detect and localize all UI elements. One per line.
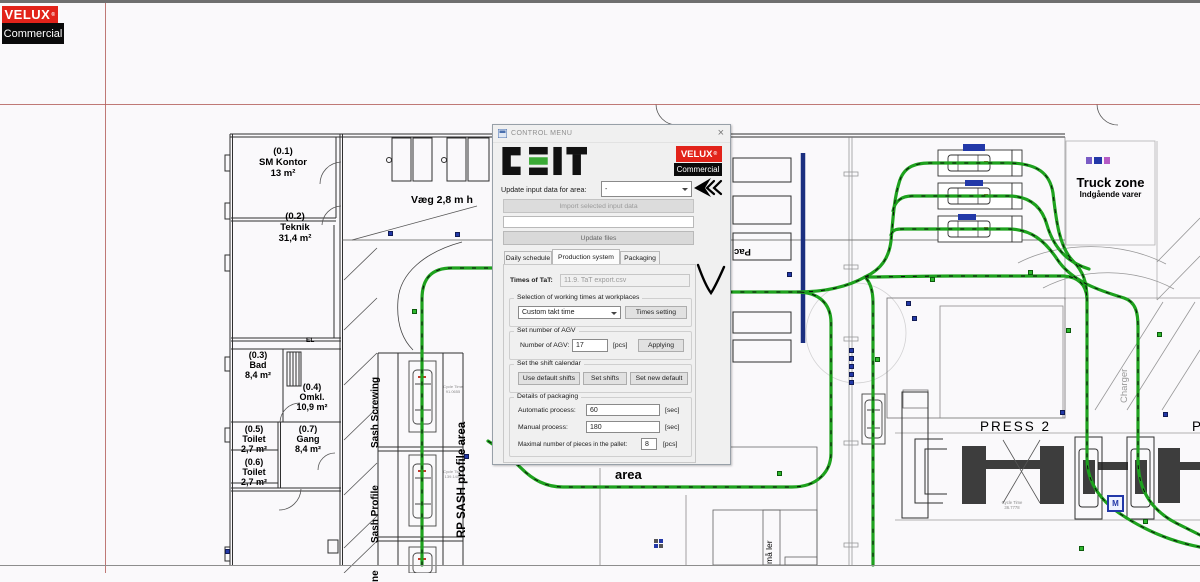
dialog-title: CONTROL MENU (511, 130, 572, 137)
path-node-icon (930, 277, 935, 282)
dock-tag-icon (963, 144, 985, 151)
path-node-icon (1066, 328, 1071, 333)
sash-profile-label: Sash Profile (370, 485, 381, 543)
pallet-pieces-unit: [pcs] (663, 441, 677, 448)
m-marker-icon: M (1107, 495, 1124, 512)
room-label-03: (0.3) Bad 8,4 m² (228, 350, 288, 380)
automatic-process-label: Automatic process: (518, 407, 576, 414)
production-system-panel: Times of TaT: 11.9. TaT export.csv Selec… (503, 264, 696, 463)
area-select[interactable]: - (601, 181, 692, 197)
times-setting-button[interactable]: Times setting (625, 306, 687, 319)
truckzone-tag-icon (1094, 157, 1102, 164)
working-times-group: Selection of working times at workplaces… (509, 298, 692, 327)
marker-icon (849, 356, 854, 361)
velux-logo: VELUX® (2, 6, 58, 23)
dock-tag-icon (958, 214, 976, 220)
room-label-04: (0.4) Omkl. 10,9 m² (282, 382, 342, 412)
path-node-icon (777, 471, 782, 476)
update-files-button[interactable]: Update files (503, 231, 694, 245)
ceit-logo (501, 146, 587, 176)
path-node-icon (1157, 332, 1162, 337)
sash-partial-label: ne (370, 570, 381, 582)
manual-process-unit: [sec] (665, 424, 679, 431)
control-menu-dialog: CONTROL MENU × VELUX® Commercial Update … (492, 124, 731, 465)
update-area-label: Update input data for area: (501, 185, 587, 194)
marker-icon (464, 454, 469, 459)
close-icon[interactable]: × (718, 127, 724, 139)
import-data-button[interactable]: Import selected input data (503, 199, 694, 213)
agv-unit-label: [pcs] (613, 342, 627, 349)
el-label: EL (306, 337, 314, 344)
velux-commercial-label: Commercial (2, 23, 64, 44)
times-of-tat-label: Times of TaT: (510, 277, 553, 284)
path-node-icon (1143, 519, 1148, 524)
path-node-icon (1079, 546, 1084, 551)
pallet-pieces-label: Maximal number of pieces in the pallet: (518, 441, 627, 448)
wall-height-label: Væg 2,8 m h (411, 194, 473, 206)
rp-sash-area-label: RP SASH profile area (456, 422, 468, 538)
marker-icon (849, 364, 854, 369)
applying-button[interactable]: Applying (638, 339, 684, 352)
sash-screwing-label: Sash Screwing (370, 377, 381, 448)
marker-icon (1060, 410, 1065, 415)
marker-icon (849, 380, 854, 385)
top-border (0, 0, 1200, 3)
automatic-process-input[interactable]: 60 (586, 404, 660, 416)
grid-line-horizontal (0, 104, 1200, 105)
marker-icon (849, 348, 854, 353)
import-status-field[interactable] (503, 216, 694, 228)
marker-icon (787, 272, 792, 277)
truckzone-tag-icon (1104, 157, 1110, 164)
dock-tag-icon (965, 180, 983, 186)
tab-production-system[interactable]: Production system (552, 249, 620, 264)
press-partial-label: P (1192, 419, 1200, 434)
window-icon (498, 129, 507, 138)
marker-icon (849, 372, 854, 377)
packaging-group: Details of packaging Automatic process: … (509, 397, 692, 457)
tab-daily-schedule[interactable]: Daily schedule (504, 251, 552, 264)
registered-mark: ® (714, 151, 718, 157)
marker-icon (912, 316, 917, 321)
room-label-07: (0.7) Gang 8,4 m² (278, 424, 338, 454)
shift-group-title: Set the shift calendar (514, 360, 584, 367)
agv-count-label: Number of AGV: (520, 342, 569, 349)
automatic-process-unit: [sec] (665, 407, 679, 414)
room-label-06: (0.6) Toilet 2,7 m² (226, 457, 282, 487)
truckzone-tag-icon (1086, 157, 1092, 164)
agv-count-input[interactable]: 17 (572, 339, 608, 352)
registered-mark: ® (51, 12, 55, 18)
marker-icon (225, 549, 230, 554)
agv-group-title: Set number of AGV (514, 327, 579, 334)
tab-packaging[interactable]: Packaging (620, 251, 660, 264)
room-label-05: (0.5) Toilet 2,7 m² (226, 424, 282, 454)
grid-marker-icon (654, 539, 664, 549)
marker-icon (906, 301, 911, 306)
velux-commercial-small: Commercial (674, 163, 722, 176)
chevron-down-icon (611, 312, 617, 315)
manual-process-label: Manual process: (518, 424, 568, 431)
marker-icon (1163, 412, 1168, 417)
marker-icon (388, 231, 393, 236)
path-node-icon (875, 357, 880, 362)
path-node-icon (1028, 270, 1033, 275)
set-shifts-button[interactable]: Set shifts (583, 372, 627, 385)
working-times-group-title: Selection of working times at workplaces (514, 294, 642, 301)
pallet-pieces-input[interactable]: 8 (641, 438, 657, 450)
packaging-group-title: Details of packaging (514, 393, 581, 400)
press2-label: PRESS 2 (980, 419, 1051, 434)
set-new-default-button[interactable]: Set new default (630, 372, 688, 385)
manual-process-input[interactable]: 180 (586, 421, 660, 433)
dialog-titlebar[interactable]: CONTROL MENU × (493, 125, 730, 143)
bottom-border (0, 565, 1200, 566)
takt-time-select[interactable]: Custom takt time (518, 306, 621, 319)
shift-calendar-group: Set the shift calendar Use default shift… (509, 364, 692, 393)
times-of-tat-field: 11.9. TaT export.csv (560, 274, 690, 287)
charger-label: Charger (1119, 369, 1130, 403)
room-label-02: (0.2) Teknik 31,4 m² (245, 211, 345, 244)
use-default-shifts-button[interactable]: Use default shifts (518, 372, 580, 385)
grid-line-vertical (105, 0, 106, 573)
pallet-text-label: må ler (764, 518, 774, 564)
room-label-01: (0.1) SM Kontor 13 m² (231, 146, 335, 179)
velux-logo-small: VELUX® (676, 146, 722, 162)
truck-zone-label: Truck zone Indgående varer (1066, 175, 1155, 199)
marker-icon (455, 232, 460, 237)
agv-group: Set number of AGV Number of AGV: 17 [pcs… (509, 331, 692, 360)
pac-label: Pac (734, 246, 751, 257)
path-node-icon (412, 309, 417, 314)
chevron-down-icon (682, 188, 688, 191)
